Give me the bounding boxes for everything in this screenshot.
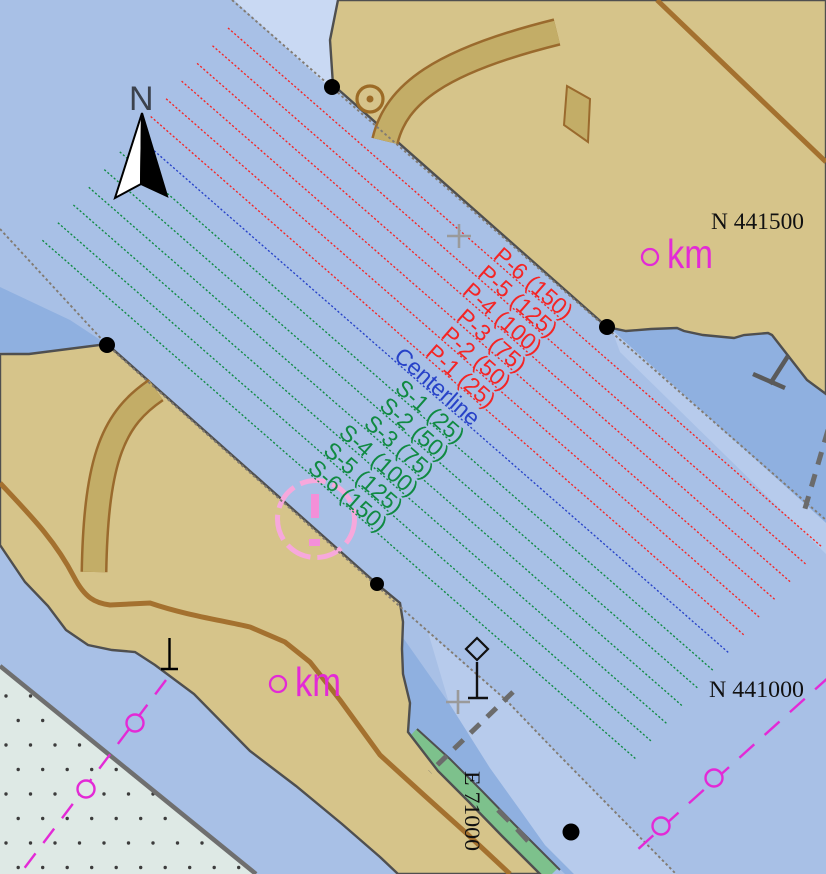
svg-text:km: km [667, 231, 713, 277]
svg-text:km: km [295, 659, 341, 705]
svg-text:N 441000: N 441000 [709, 677, 804, 702]
svg-text:E 71000: E 71000 [460, 771, 485, 851]
svg-text:N: N [129, 80, 154, 118]
svg-text:N 441500: N 441500 [711, 209, 804, 234]
